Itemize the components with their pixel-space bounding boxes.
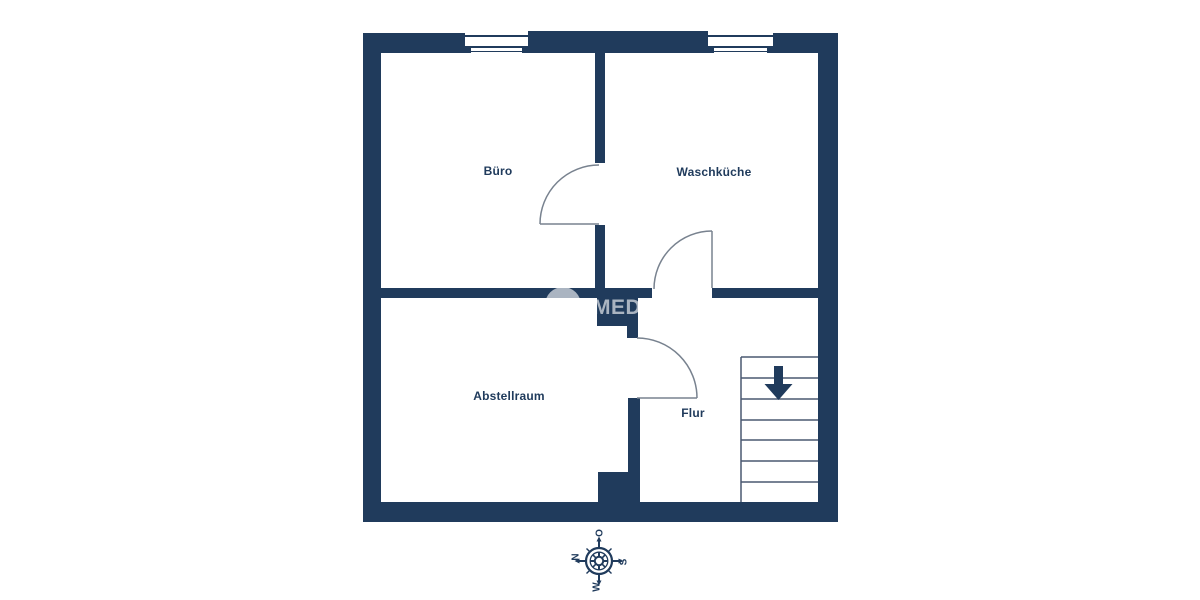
arrow-head — [765, 384, 793, 400]
room-label-abstellraum: Abstellraum — [473, 389, 545, 403]
door-flur — [637, 338, 697, 398]
room-label-buero: Büro — [484, 164, 513, 178]
compass-letter-north: N — [571, 553, 582, 560]
door-arc — [637, 338, 697, 398]
compass-letter-east: O — [595, 529, 606, 537]
stairs-down-arrow-icon — [765, 366, 793, 400]
compass-rose-icon — [575, 537, 624, 586]
arrow-stem — [774, 366, 783, 384]
room-label-waschkueche: Waschküche — [677, 165, 752, 179]
compass-letter-south: S — [619, 559, 630, 566]
room-label-flur: Flur — [681, 406, 704, 420]
door-waschkueche — [654, 231, 712, 289]
floor-plan-canvas: Büro Waschküche Abstellraum Flur MED O N… — [0, 0, 1200, 600]
watermark-logo-dome — [545, 287, 581, 323]
door-arc — [540, 165, 599, 224]
door-buero — [540, 165, 599, 224]
compass-letter-west: W — [592, 582, 603, 591]
door-arc — [654, 231, 712, 289]
watermark-text: MED — [593, 296, 641, 320]
